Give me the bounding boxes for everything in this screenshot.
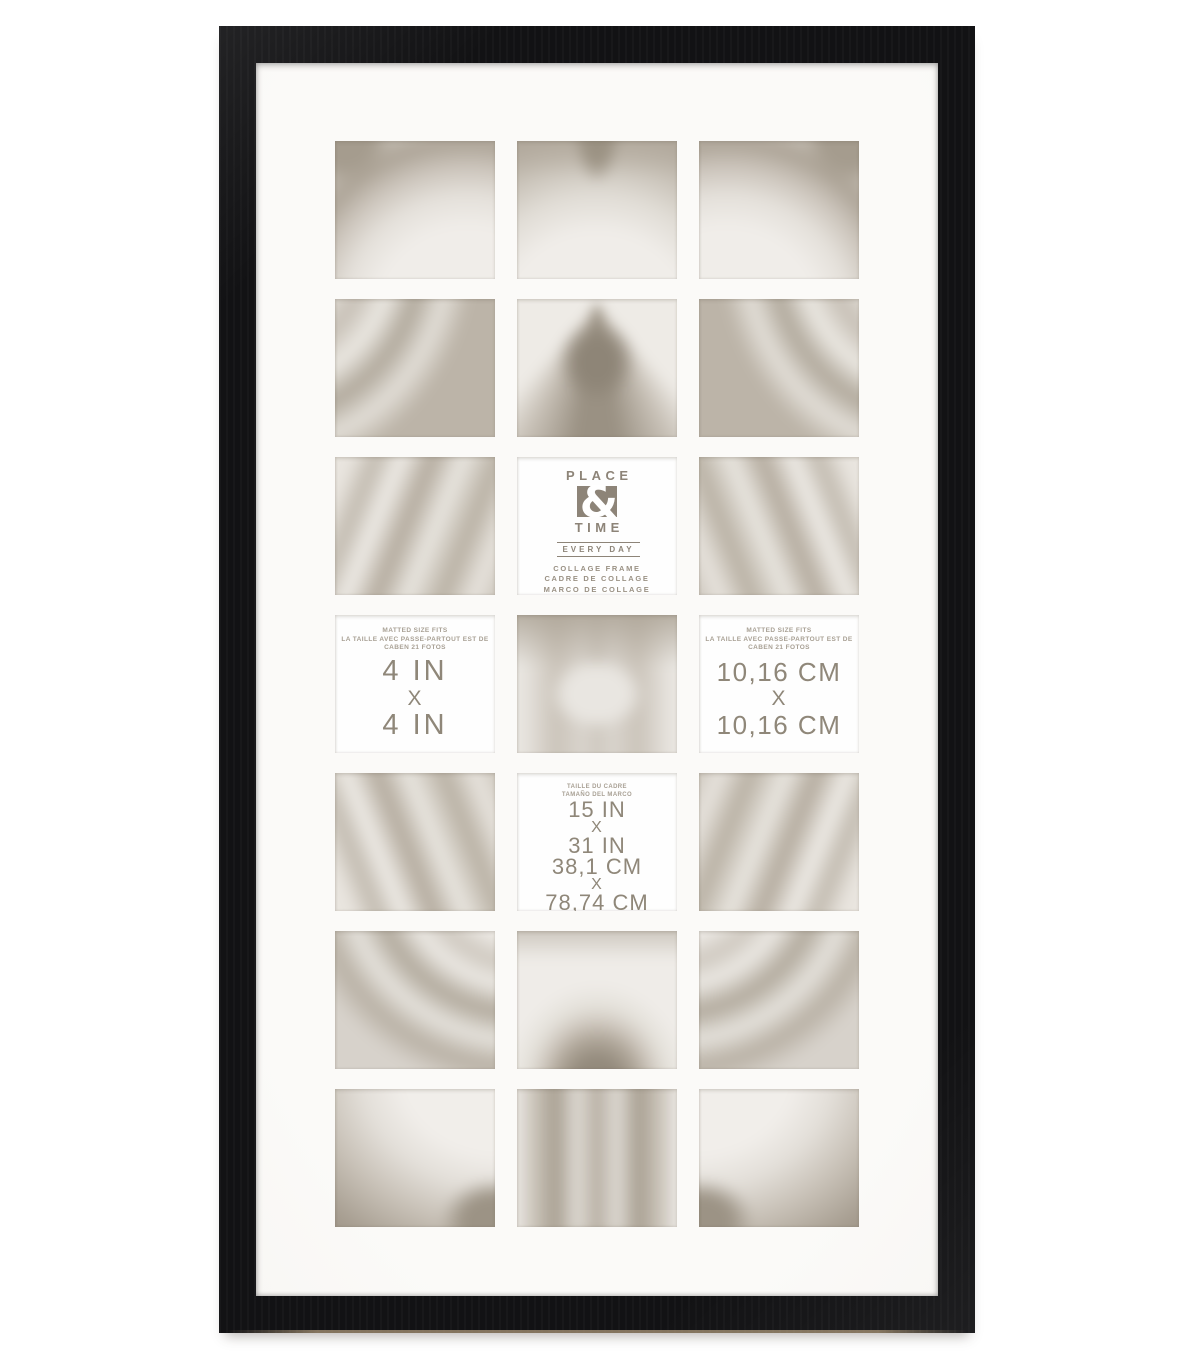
photo-opening-r1c2 — [517, 141, 677, 279]
photo-openings-grid: PLACE & TIME EVERY DAY COLLAGE FRAME CAD… — [335, 141, 859, 1227]
dimension-separator: X — [382, 687, 447, 710]
photo-opening-r5c3 — [699, 773, 859, 911]
product-line-es: MARCO DE COLLAGE — [544, 585, 651, 596]
product-line-fr: CADRE DE COLLAGE — [544, 574, 651, 585]
brand-card: PLACE & TIME EVERY DAY COLLAGE FRAME CAD… — [517, 457, 677, 595]
photo-opening-r1c3 — [699, 141, 859, 279]
matted-size-card-inches: MATTED SIZE FITS LA TAILLE AVEC PASSE-PA… — [335, 615, 495, 753]
frame-size-values: 15 IN X 31 IN 38,1 CM X 78,74 CM — [545, 799, 648, 911]
frame-width-cm: 38,1 CM — [545, 856, 648, 877]
photo-opening-r6c1 — [335, 931, 495, 1069]
photo-opening-r7c2 — [517, 1089, 677, 1227]
frame-size-header-line1: TAILLE DU CADRE — [562, 783, 632, 791]
matted-size-header-line3: CABEN 21 FOTOS — [341, 644, 488, 653]
photo-opening-r6c2 — [517, 931, 677, 1069]
photo-opening-r2c1 — [335, 299, 495, 437]
matted-size-header-line2: LA TAILLE AVEC PASSE-PARTOUT EST DE — [341, 636, 488, 645]
dimension-separator: X — [717, 687, 842, 710]
matted-width-in: 4 IN — [382, 656, 447, 687]
matted-size-header-line1: MATTED SIZE FITS — [705, 627, 852, 636]
ampersand-box: & — [577, 486, 617, 517]
photo-opening-r7c1 — [335, 1089, 495, 1227]
matted-height-in: 4 IN — [382, 710, 447, 741]
frame-height-in: 31 IN — [545, 835, 648, 856]
photo-opening-r3c1 — [335, 457, 495, 595]
matted-size-header-cm: MATTED SIZE FITS LA TAILLE AVEC PASSE-PA… — [705, 627, 852, 653]
matted-size-inches-values: 4 IN X 4 IN — [382, 653, 447, 754]
frame-width-in: 15 IN — [545, 799, 648, 820]
photo-opening-r2c3 — [699, 299, 859, 437]
product-name-lines: COLLAGE FRAME CADRE DE COLLAGE MARCO DE … — [544, 564, 651, 596]
matted-size-card-cm: MATTED SIZE FITS LA TAILLE AVEC PASSE-PA… — [699, 615, 859, 753]
matted-height-cm: 10,16 CM — [717, 710, 842, 740]
matted-size-header-line1: MATTED SIZE FITS — [341, 627, 488, 636]
product-photo-collage-frame: PLACE & TIME EVERY DAY COLLAGE FRAME CAD… — [0, 0, 1200, 1360]
mat-board: PLACE & TIME EVERY DAY COLLAGE FRAME CAD… — [256, 63, 938, 1296]
photo-opening-r3c3 — [699, 457, 859, 595]
photo-opening-r2c2 — [517, 299, 677, 437]
photo-opening-r7c3 — [699, 1089, 859, 1227]
ampersand-glyph: & — [580, 481, 618, 525]
photo-opening-r6c3 — [699, 931, 859, 1069]
matted-size-header-line2: LA TAILLE AVEC PASSE-PARTOUT EST DE — [705, 636, 852, 645]
matted-size-header: MATTED SIZE FITS LA TAILLE AVEC PASSE-PA… — [341, 627, 488, 653]
frame-height-cm: 78,74 CM — [545, 892, 648, 911]
matted-width-cm: 10,16 CM — [717, 657, 842, 687]
matted-size-header-line3: CABEN 21 FOTOS — [705, 644, 852, 653]
photo-opening-r1c1 — [335, 141, 495, 279]
frame-border: PLACE & TIME EVERY DAY COLLAGE FRAME CAD… — [219, 26, 975, 1333]
brand-tagline: EVERY DAY — [557, 542, 639, 557]
matted-size-cm-values: 10,16 CM X 10,16 CM — [717, 653, 842, 754]
photo-opening-r4c2 — [517, 615, 677, 753]
product-line-en: COLLAGE FRAME — [544, 564, 651, 575]
frame-size-card: TAILLE DU CADRE TAMAÑO DEL MARCO 15 IN X… — [517, 773, 677, 911]
photo-opening-r5c1 — [335, 773, 495, 911]
